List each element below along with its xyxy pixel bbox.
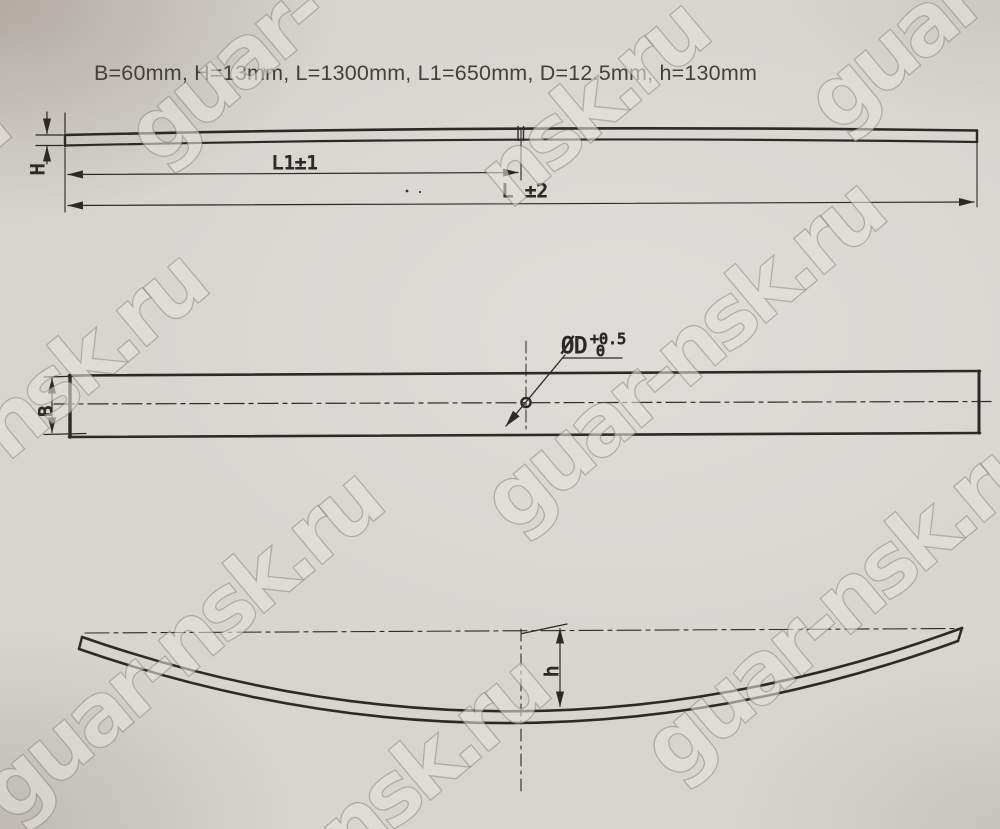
dim-line-L: [68, 202, 974, 206]
plan-bottom-edge: [69, 433, 980, 437]
curve-chord-centerline: [85, 629, 963, 634]
b-ext-ticks: [44, 376, 86, 435]
view-plan: B ØD +0.5 0: [35, 330, 991, 437]
ink-speck: [406, 190, 409, 193]
dim-B: [44, 376, 86, 435]
label-B: B: [35, 406, 57, 417]
dimensions-title-text: B=60mm, H=13mm, L=1300mm, L1=650mm, D=12…: [94, 61, 757, 86]
technical-drawing-page: H L1±1 L ±2: [0, 0, 1000, 829]
ink-speck: [419, 191, 421, 193]
h-ext-ticks: [36, 135, 63, 146]
label-hole-tol-lower: 0: [596, 342, 605, 360]
view-curved: h: [79, 624, 963, 791]
view-side-flat: H L1±1 L ±2: [27, 112, 977, 212]
curve-top-edge: [82, 628, 962, 711]
curve-left-cap: [79, 637, 82, 649]
label-L1: L1±1: [272, 152, 318, 174]
label-L: L ±2: [502, 180, 548, 202]
hole-leader-line: [506, 355, 565, 426]
label-H: H: [27, 164, 49, 175]
dim-H: [36, 112, 65, 164]
label-h: h: [541, 666, 563, 677]
plan-top-edge: [69, 371, 980, 376]
label-hole-dia: ØD: [561, 334, 588, 359]
leaf-spring-drawing: H L1±1 L ±2: [0, 0, 1000, 829]
